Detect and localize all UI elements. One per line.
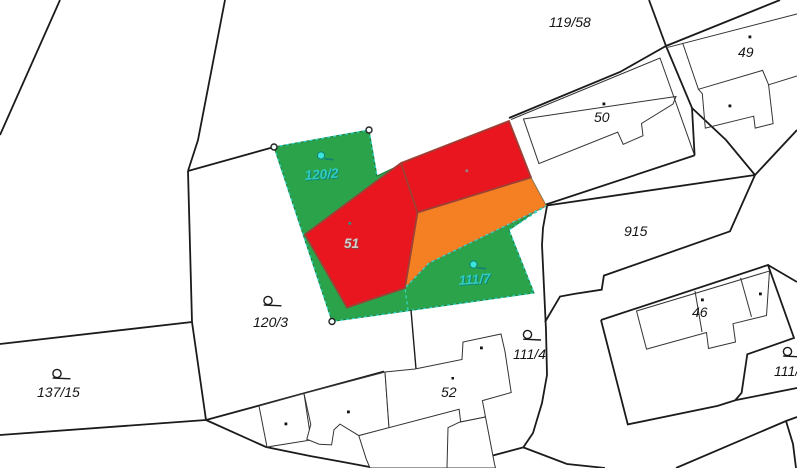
svg-text:49: 49 — [738, 44, 754, 60]
svg-text:137/15: 137/15 — [37, 384, 80, 400]
svg-text:46: 46 — [692, 304, 708, 320]
svg-text:52: 52 — [441, 384, 457, 400]
svg-text:50: 50 — [594, 109, 610, 125]
svg-text:51: 51 — [344, 236, 359, 251]
svg-text:915: 915 — [624, 223, 648, 239]
svg-text:111/7: 111/7 — [458, 271, 492, 288]
svg-text:111/2: 111/2 — [774, 363, 797, 379]
svg-text:120/3: 120/3 — [253, 314, 288, 330]
svg-text:119/58: 119/58 — [549, 14, 591, 30]
svg-text:120/2: 120/2 — [304, 166, 339, 183]
svg-text:111/4: 111/4 — [513, 346, 546, 362]
